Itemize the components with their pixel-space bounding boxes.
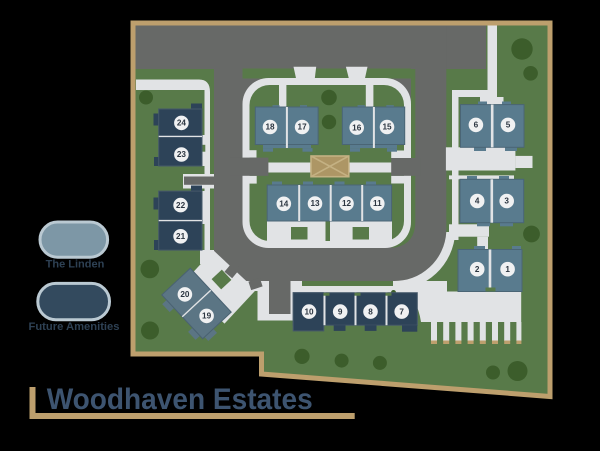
svg-text:20: 20 xyxy=(180,290,190,299)
svg-text:7: 7 xyxy=(399,307,404,316)
svg-text:Future Amenities: Future Amenities xyxy=(29,321,120,333)
svg-text:The Linden: The Linden xyxy=(46,259,105,271)
svg-text:1: 1 xyxy=(505,265,510,274)
svg-text:12: 12 xyxy=(342,199,352,208)
svg-text:11: 11 xyxy=(373,199,382,208)
svg-text:16: 16 xyxy=(352,123,362,132)
svg-text:2: 2 xyxy=(475,265,480,274)
svg-text:5: 5 xyxy=(506,121,511,130)
svg-text:Woodhaven Estates: Woodhaven Estates xyxy=(47,383,313,416)
svg-text:17: 17 xyxy=(298,123,308,132)
svg-text:13: 13 xyxy=(310,199,320,208)
svg-text:19: 19 xyxy=(202,312,212,321)
svg-text:10: 10 xyxy=(304,307,314,316)
svg-text:18: 18 xyxy=(265,123,275,132)
svg-text:9: 9 xyxy=(338,307,343,316)
svg-text:22: 22 xyxy=(176,201,186,210)
svg-text:24: 24 xyxy=(177,119,187,128)
svg-text:23: 23 xyxy=(177,150,187,159)
svg-text:14: 14 xyxy=(279,200,289,209)
svg-text:4: 4 xyxy=(475,197,480,206)
svg-text:15: 15 xyxy=(382,123,392,132)
svg-text:21: 21 xyxy=(176,232,186,241)
svg-text:6: 6 xyxy=(474,121,479,130)
svg-text:8: 8 xyxy=(368,307,373,316)
svg-text:3: 3 xyxy=(504,197,509,206)
